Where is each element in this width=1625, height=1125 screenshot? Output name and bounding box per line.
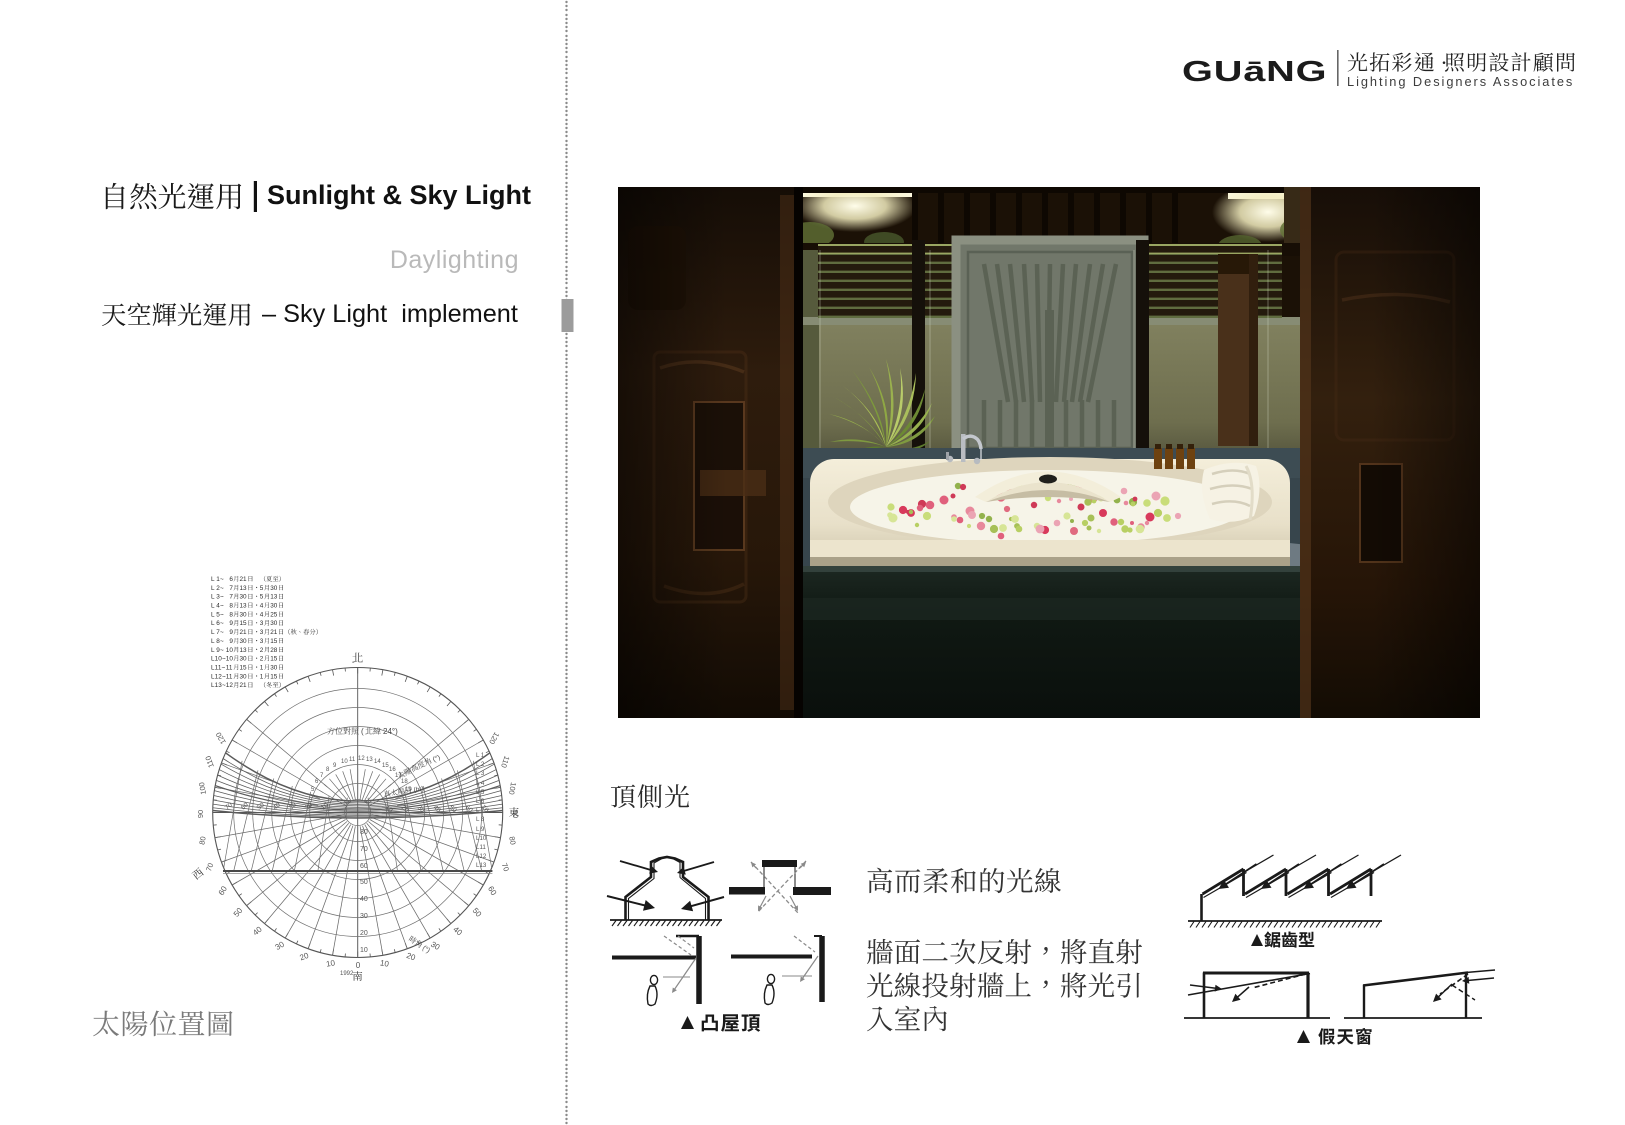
svg-text:21: 21 [270, 629, 278, 636]
svg-text:13: 13 [240, 603, 248, 610]
svg-text:11: 11 [349, 757, 356, 763]
svg-text:L 4~: L 4~ [211, 603, 224, 610]
svg-text:15: 15 [240, 665, 248, 672]
svg-text:30: 30 [270, 603, 278, 610]
svg-text:60: 60 [486, 885, 499, 898]
svg-text:L13: L13 [476, 862, 487, 869]
svg-text:L 3~: L 3~ [211, 594, 224, 601]
svg-text:30: 30 [270, 665, 278, 672]
svg-text:L11~: L11~ [211, 665, 225, 672]
svg-text:80: 80 [197, 836, 207, 846]
svg-text:30: 30 [429, 940, 442, 953]
svg-text:30: 30 [270, 620, 278, 627]
svg-text:70: 70 [500, 862, 511, 873]
svg-text:28: 28 [270, 647, 278, 654]
svg-text:7: 7 [320, 773, 324, 779]
svg-text:80: 80 [360, 829, 368, 836]
svg-text:30: 30 [240, 656, 248, 663]
svg-text:L 3: L 3 [476, 770, 485, 777]
svg-text:21: 21 [240, 576, 248, 583]
svg-text:9: 9 [229, 620, 233, 627]
svg-text:5: 5 [260, 585, 264, 592]
svg-text:GUāNG: GUāNG [1182, 56, 1327, 88]
svg-text:80: 80 [507, 836, 517, 846]
svg-text:L 7~: L 7~ [211, 629, 224, 636]
svg-text:9: 9 [333, 763, 337, 769]
svg-text:20: 20 [360, 930, 368, 937]
svg-text:10: 10 [341, 759, 348, 765]
svg-text:7: 7 [229, 585, 233, 592]
svg-text:12: 12 [226, 682, 234, 689]
svg-text:L 6: L 6 [476, 798, 485, 805]
svg-text:L 6~: L 6~ [211, 620, 224, 627]
svg-text:2: 2 [260, 647, 264, 654]
svg-text:9: 9 [229, 638, 233, 645]
svg-text:L12: L12 [476, 853, 487, 860]
svg-text:9: 9 [229, 629, 233, 636]
svg-text:15: 15 [240, 620, 248, 627]
svg-text:Lighting Designers Associates: Lighting Designers Associates [1347, 74, 1574, 89]
svg-text:30: 30 [240, 594, 248, 601]
svg-text:8: 8 [229, 603, 233, 610]
svg-text:4: 4 [260, 603, 264, 610]
svg-text:24°): 24°) [383, 727, 398, 736]
svg-text:L 8~: L 8~ [211, 638, 224, 645]
svg-text:110: 110 [499, 755, 512, 769]
svg-text:110: 110 [203, 755, 216, 769]
svg-text:L 8: L 8 [476, 816, 485, 823]
svg-text:19: 19 [405, 787, 412, 793]
svg-text:90: 90 [196, 810, 205, 818]
svg-text:10: 10 [379, 958, 390, 969]
svg-text:60: 60 [360, 863, 368, 870]
svg-text:11: 11 [226, 665, 233, 672]
svg-text:8: 8 [229, 611, 233, 618]
svg-text:L11: L11 [476, 844, 486, 851]
svg-text:L10: L10 [476, 835, 487, 842]
svg-text:L10~: L10~ [211, 656, 226, 663]
svg-text:– Sky Light implement: – Sky Light implement [262, 300, 518, 328]
svg-text:2: 2 [260, 656, 264, 663]
svg-text:13: 13 [240, 647, 248, 654]
svg-text:100: 100 [507, 781, 518, 795]
svg-text:Daylighting: Daylighting [390, 246, 519, 274]
svg-text:3: 3 [260, 620, 264, 627]
svg-text:L 7: L 7 [476, 807, 485, 814]
svg-text:1: 1 [260, 673, 264, 680]
svg-text:50: 50 [360, 879, 368, 886]
svg-text:70: 70 [204, 862, 215, 873]
svg-text:15: 15 [270, 656, 278, 663]
svg-text:30: 30 [270, 585, 278, 592]
svg-text:L 1~: L 1~ [211, 576, 224, 583]
svg-text:6: 6 [229, 576, 233, 583]
svg-text:50: 50 [471, 906, 484, 919]
svg-text:12: 12 [358, 756, 365, 762]
svg-text:L 2: L 2 [476, 761, 485, 768]
svg-text:10: 10 [325, 958, 336, 969]
svg-text:30: 30 [240, 611, 248, 618]
svg-text:L 5~: L 5~ [211, 611, 224, 618]
svg-text:1992: 1992 [340, 971, 354, 977]
svg-text:15: 15 [270, 673, 278, 680]
svg-text:L 2~: L 2~ [211, 585, 224, 592]
svg-text:18: 18 [401, 779, 408, 785]
svg-text:L12~: L12~ [211, 673, 226, 680]
svg-text:1: 1 [260, 665, 264, 672]
svg-text:3: 3 [260, 638, 264, 645]
svg-text:15: 15 [270, 638, 278, 645]
svg-text:40: 40 [451, 925, 464, 938]
svg-text:21: 21 [240, 629, 248, 636]
svg-text:L 9: L 9 [476, 826, 485, 833]
svg-text:3: 3 [260, 629, 264, 636]
svg-text:13: 13 [366, 757, 373, 763]
svg-text:30: 30 [274, 939, 287, 952]
svg-text:30: 30 [240, 673, 248, 680]
svg-text:120: 120 [214, 731, 228, 746]
svg-text:(°): (°) [431, 753, 441, 764]
svg-text:70: 70 [360, 846, 368, 853]
svg-text:L 1: L 1 [476, 752, 485, 759]
svg-text:7: 7 [229, 594, 233, 601]
svg-text:13: 13 [270, 594, 278, 601]
svg-text:L 5: L 5 [476, 789, 485, 796]
svg-text:20: 20 [405, 951, 417, 963]
svg-text:25: 25 [270, 611, 278, 618]
svg-text:8: 8 [326, 767, 330, 773]
svg-text:60: 60 [217, 884, 230, 897]
svg-text:L 9~: L 9~ [211, 647, 224, 654]
svg-text:13: 13 [240, 585, 248, 592]
svg-text:10: 10 [226, 647, 234, 654]
svg-text:Sunlight & Sky Light: Sunlight & Sky Light [267, 180, 531, 210]
svg-text:0: 0 [356, 961, 361, 970]
svg-text:4: 4 [260, 611, 264, 618]
svg-text:10: 10 [360, 947, 368, 954]
svg-text:120: 120 [487, 731, 501, 746]
svg-text:90: 90 [511, 810, 520, 818]
svg-text:5: 5 [260, 594, 264, 601]
svg-text:40: 40 [360, 896, 368, 903]
svg-text:(: ( [361, 727, 364, 736]
svg-text:50: 50 [232, 906, 245, 919]
svg-text:21: 21 [240, 682, 248, 689]
svg-text:20: 20 [298, 951, 310, 963]
svg-text:10: 10 [226, 656, 234, 663]
svg-text:11: 11 [226, 673, 233, 680]
svg-text:14: 14 [374, 759, 381, 765]
svg-text:30: 30 [360, 913, 368, 920]
svg-text:100: 100 [197, 781, 208, 795]
svg-text:L13~: L13~ [211, 682, 226, 689]
svg-text:40: 40 [251, 924, 264, 937]
svg-text:L 4: L 4 [476, 780, 485, 787]
svg-text:30: 30 [240, 638, 248, 645]
